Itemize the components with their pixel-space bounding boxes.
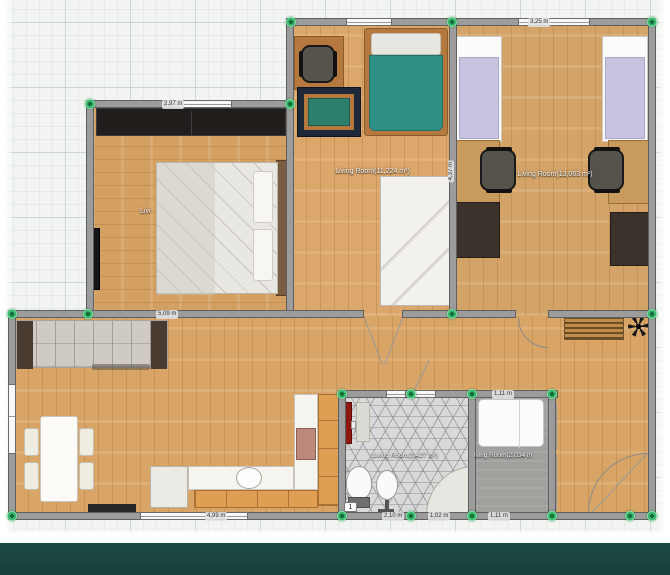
wardrobe-white[interactable] <box>380 176 450 306</box>
dimension-label: 5,09 m <box>156 310 178 319</box>
dresser-right[interactable] <box>610 212 652 266</box>
pillow <box>253 171 273 223</box>
room-label-middle: Living Room(11,224 m²) <box>310 166 435 177</box>
wardrobe-dark[interactable] <box>96 108 286 136</box>
single-bed-left[interactable] <box>456 36 502 142</box>
corner-handle[interactable] <box>337 511 347 521</box>
dimension-label: 1,11 m <box>492 390 514 399</box>
chair-arm <box>486 147 512 151</box>
kitchen-cabinet-row[interactable] <box>194 490 318 508</box>
chair-arm <box>486 189 512 193</box>
corner-handle[interactable] <box>337 389 347 399</box>
corner-handle[interactable] <box>7 309 17 319</box>
wall-mid-horizontal-c[interactable] <box>548 310 656 318</box>
framed-picture[interactable] <box>297 87 361 137</box>
dining-chair[interactable] <box>24 462 39 490</box>
dining-chair[interactable] <box>79 462 94 490</box>
pillow <box>253 229 273 281</box>
corner-handle[interactable] <box>7 511 17 521</box>
corner-handle[interactable] <box>286 17 296 27</box>
corner-handle[interactable] <box>625 511 635 521</box>
corner-handle[interactable] <box>467 511 477 521</box>
small-bed[interactable] <box>478 399 544 447</box>
dimension-label: 2,10 m <box>382 512 404 521</box>
bottom-teal-bar <box>0 543 670 575</box>
room-label-right: Living Room(13,063 m²) <box>480 169 630 180</box>
wall-bathroom-top[interactable] <box>338 390 558 398</box>
door-number-badge[interactable]: 1 <box>344 502 357 512</box>
dining-table[interactable] <box>40 416 78 502</box>
single-bed-teal[interactable] <box>364 28 448 136</box>
corner-handle[interactable] <box>647 511 657 521</box>
bed-blanket-lavender <box>459 57 499 139</box>
pillow <box>371 33 441 55</box>
corner-handle[interactable] <box>647 17 657 27</box>
wall-mid-horizontal-b[interactable] <box>402 310 516 318</box>
corner-handle[interactable] <box>547 389 557 399</box>
wall-shelf[interactable] <box>88 504 136 512</box>
dimension-label: 4,99 m <box>205 512 227 521</box>
bed-seam <box>519 400 520 448</box>
dimension-label: 1,11 m <box>488 512 510 521</box>
bed-blanket-lavender <box>605 57 645 139</box>
bath-cabinet[interactable] <box>356 402 370 442</box>
canvas-right-edge <box>656 0 670 543</box>
dimension-label-vertical: 4,37 m <box>448 160 454 182</box>
blanket-fold <box>157 163 215 295</box>
corner-handle[interactable] <box>467 389 477 399</box>
wall-right-outer[interactable] <box>648 18 656 518</box>
kitchen-sink[interactable] <box>236 467 262 489</box>
office-chair[interactable] <box>301 45 335 83</box>
window[interactable] <box>346 18 392 26</box>
window[interactable] <box>140 512 248 520</box>
corner-handle[interactable] <box>406 389 416 399</box>
bed-blanket-teal <box>369 55 443 131</box>
picture-art <box>308 98 350 126</box>
room-label-bathroom: Living Room(3,427 m²) <box>340 450 470 461</box>
wardrobe-seam <box>191 111 192 135</box>
double-bed[interactable] <box>156 162 278 294</box>
chair-arm <box>299 51 303 77</box>
window[interactable] <box>8 384 16 454</box>
corner-handle[interactable] <box>547 511 557 521</box>
stove[interactable] <box>296 428 316 460</box>
chair-arm <box>333 51 337 77</box>
toilet-bowl[interactable] <box>346 466 372 500</box>
wall-top[interactable] <box>288 18 656 26</box>
sofa-armrest <box>17 321 33 369</box>
window[interactable] <box>386 390 406 398</box>
dishwasher[interactable] <box>150 466 188 508</box>
wall-bottom[interactable] <box>8 512 656 520</box>
dining-chair[interactable] <box>24 428 39 456</box>
corner-handle[interactable] <box>447 309 457 319</box>
corner-handle[interactable] <box>83 309 93 319</box>
dimension-label: 3,25 m <box>528 18 550 27</box>
corner-handle[interactable] <box>447 17 457 27</box>
corner-handle[interactable] <box>285 99 295 109</box>
radiator-bench[interactable] <box>564 318 624 340</box>
ceiling-fan-icon[interactable] <box>628 316 649 337</box>
dimension-label: 1,02 m <box>428 512 450 521</box>
dimension-label: 2,97 m <box>162 100 184 109</box>
picture-inner-frame <box>304 94 354 130</box>
dresser-left[interactable] <box>456 202 500 258</box>
bidet[interactable] <box>376 470 398 500</box>
sofa-armrest <box>151 321 167 369</box>
corner-handle[interactable] <box>647 309 657 319</box>
sofa[interactable] <box>16 320 168 368</box>
wall-left-room-left[interactable] <box>86 100 94 316</box>
dining-chair[interactable] <box>79 428 94 456</box>
single-bed-right[interactable] <box>602 36 648 142</box>
corner-handle[interactable] <box>406 511 416 521</box>
corner-handle[interactable] <box>85 99 95 109</box>
room-label-left: Livi <box>140 206 170 217</box>
chair-arm <box>594 189 620 193</box>
wall-middle-left[interactable] <box>286 18 294 318</box>
chair-arm <box>594 147 620 151</box>
room-label-small-bedroom: iving Room(2,034 m <box>474 450 560 461</box>
floorplan-canvas[interactable]: Livi Living Room(11,224 m²) Living Room(… <box>0 0 670 575</box>
canvas-bottom-fade <box>0 528 670 543</box>
wall-mid-horizontal-a[interactable] <box>8 310 364 318</box>
sofa-tag <box>92 364 150 370</box>
